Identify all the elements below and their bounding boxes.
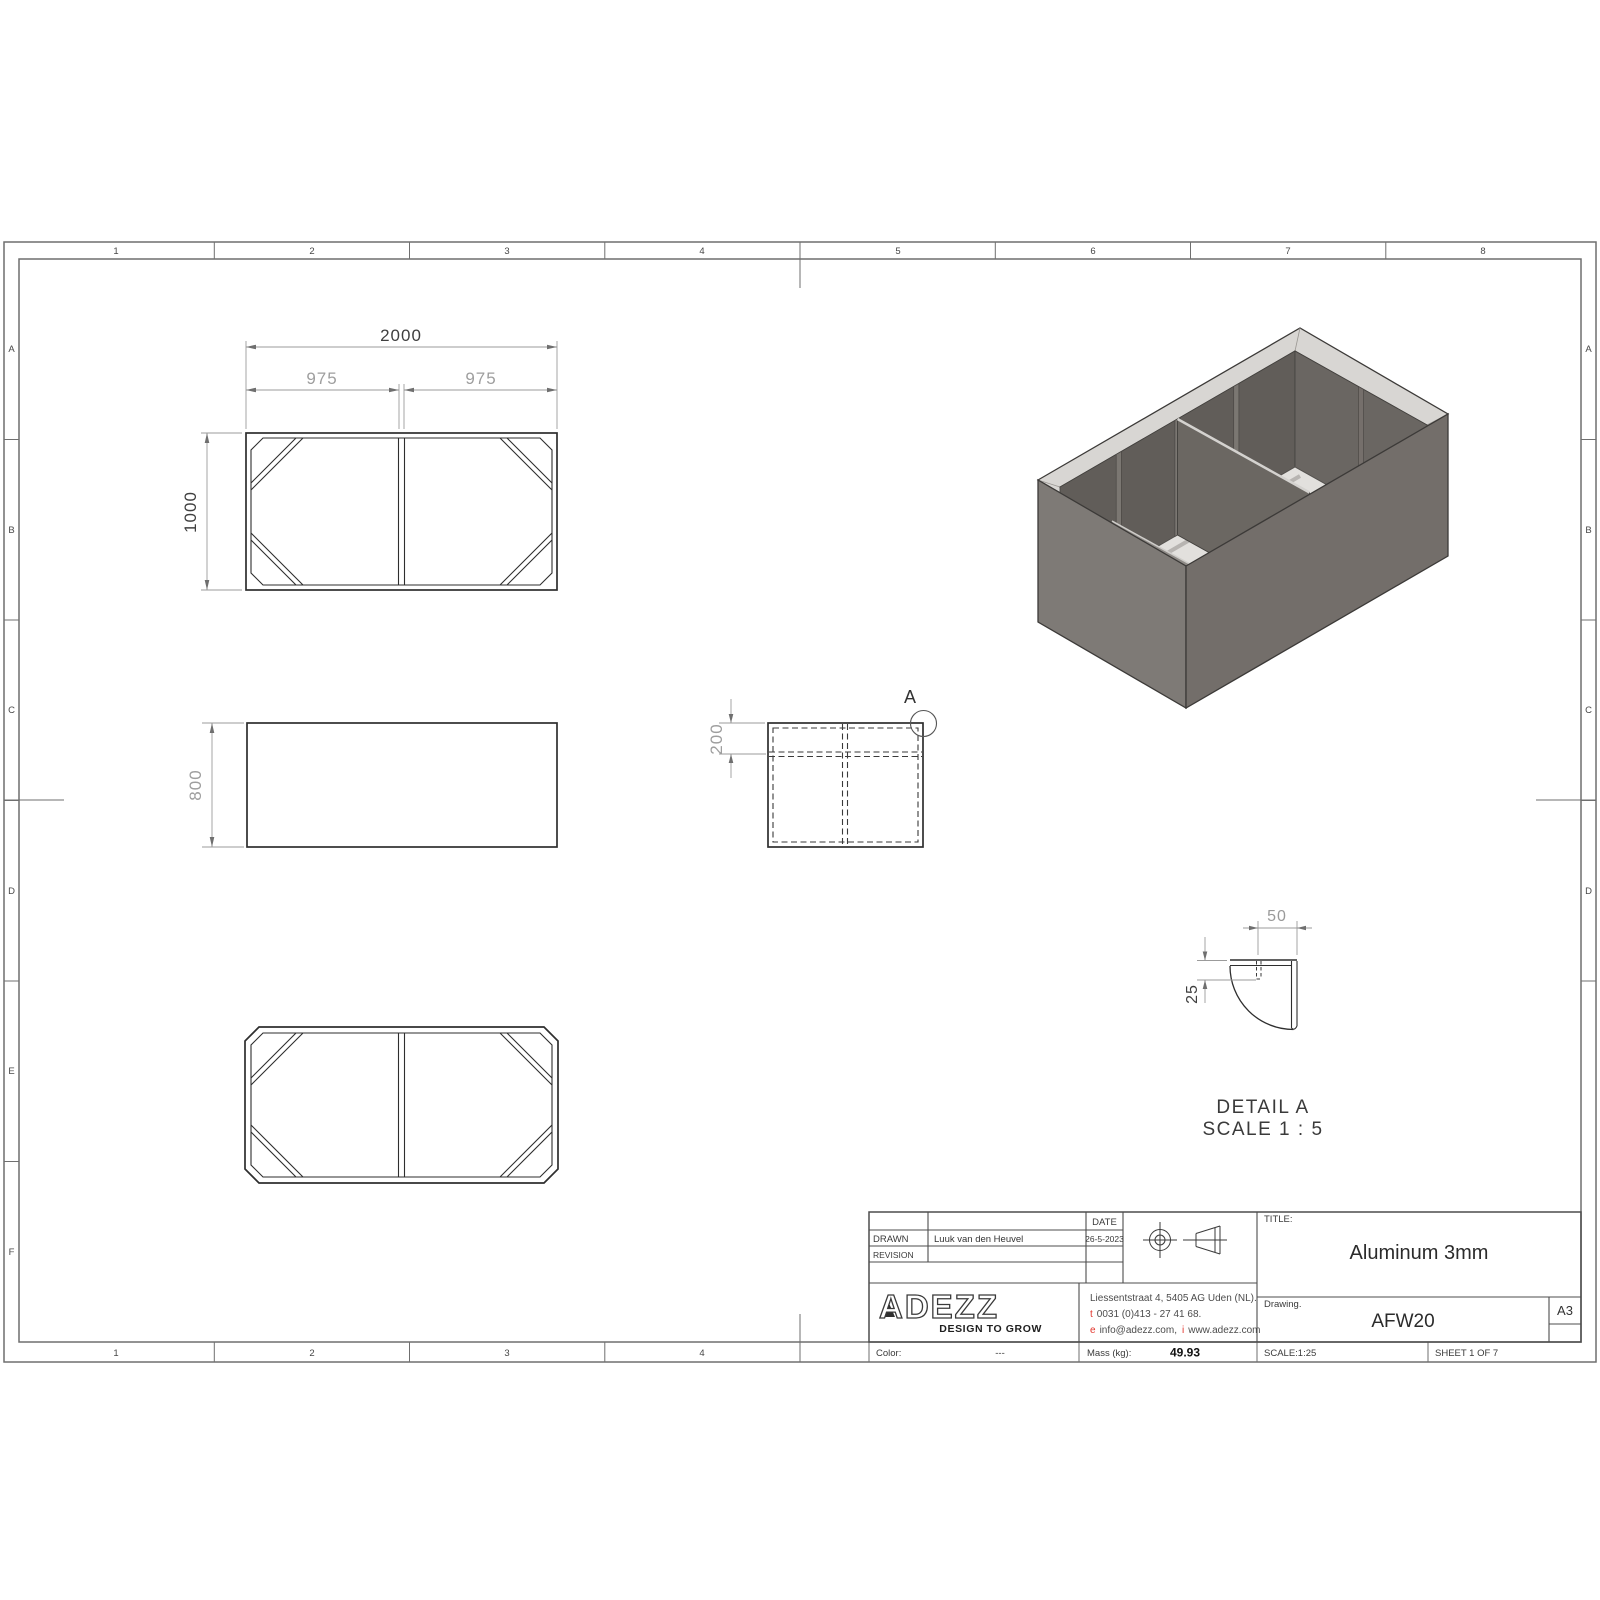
company-logo: ADEZZ [879,1288,999,1325]
cad-sheet-canvas: 1 2 3 4 5 6 7 8 1 2 3 4 A B C D E F A B … [0,0,1600,1600]
company-tagline: DESIGN TO GROW [939,1323,1042,1335]
front-view-outline [247,723,557,847]
dim-975-left: 975 [306,369,337,388]
bottom-corner-brace-bl [251,1125,303,1177]
corner-brace-tl [251,438,303,490]
detail-dim50-lines [1243,921,1312,955]
date-value: 26-5-2023 [1085,1234,1124,1244]
drawing-label: Drawing. [1264,1299,1302,1310]
top-view-outline [246,433,557,590]
top-view-center-divider [399,438,405,585]
web-value: www.adezz.com [1187,1325,1260,1336]
dim-1000: 1000 [181,491,200,533]
phone-prefix: t [1090,1309,1093,1320]
bottom-zone-dividers [214,1342,1428,1362]
title-label: TITLE: [1264,1214,1293,1225]
date-label: DATE [1092,1217,1117,1228]
title-value: Aluminum 3mm [1350,1242,1489,1264]
front-view-extension-lines [202,723,244,847]
side-view-outline [768,723,923,847]
detail-callout-label: A [904,687,916,707]
bottom-view-outline [245,1027,558,1183]
dim-975-right: 975 [465,369,496,388]
detail-title: DETAIL A [1216,1097,1309,1118]
corner-brace-bl [251,533,303,585]
zone-col-label: 1 [113,246,118,257]
company-web: einfo@adezz.com,iwww.adezz.com [1090,1325,1260,1336]
zone-col-label-bottom: 3 [504,1348,509,1359]
zone-row-label: D [8,886,15,897]
drawn-label: DRAWN [873,1234,909,1245]
zone-col-label: 5 [895,246,900,257]
detail-a-view: 50 25 DETAIL A SCALE 1 : 5 [1184,908,1324,1140]
zone-row-label-right: A [1585,344,1592,355]
sheet-value: SHEET 1 OF 7 [1435,1348,1498,1359]
phone-value: 0031 (0)413 - 27 41 68. [1097,1309,1202,1320]
email-prefix: e [1090,1325,1096,1336]
bottom-view-inner-wall [251,1033,552,1177]
top-view-inner-wall [251,438,552,585]
detail-hidden-fold [1257,961,1262,979]
zone-col-label-bottom: 2 [309,1348,314,1359]
zone-row-label-right: D [1585,886,1592,897]
scale-value: SCALE:1:25 [1264,1348,1316,1359]
side-view-extension-lines [719,723,766,754]
side-view-hidden-divider [843,724,848,846]
bottom-view-center-divider [399,1033,405,1177]
zone-col-label-bottom: 4 [699,1348,704,1359]
paper-size: A3 [1557,1303,1573,1318]
bottom-view [245,1027,558,1183]
zone-row-label: B [8,525,14,536]
top-view-extension-lines [201,341,557,590]
dim-800: 800 [186,769,205,800]
company-phone: t0031 (0)413 - 27 41 68. [1090,1309,1201,1320]
color-label: Color: [876,1348,901,1359]
zone-col-label: 4 [699,246,704,257]
zone-col-label: 7 [1285,246,1290,257]
drawn-by-value: Luuk van den Heuvel [934,1234,1023,1245]
zone-row-label: F [9,1247,15,1258]
zone-col-label-bottom: 1 [113,1348,118,1359]
zone-row-label: C [8,705,15,716]
revision-label: REVISION [873,1250,914,1260]
dim-200: 200 [707,723,726,754]
mass-label: Mass (kg): [1087,1348,1131,1359]
top-view-dimension-lines [207,347,557,590]
corner-brace-br [500,533,552,585]
zone-row-label-right: C [1585,705,1592,716]
title-block: DATE DRAWN Luuk van den Heuvel 26-5-2023… [869,1212,1581,1360]
bottom-corner-brace-tr [500,1033,552,1085]
drawing-number: AFW20 [1371,1311,1434,1332]
dim-2000: 2000 [380,326,422,345]
front-view: 800 [186,723,557,847]
zone-row-label: E [8,1066,14,1077]
detail-corner-gusset-arc [1230,966,1294,1030]
detail-scale: SCALE 1 : 5 [1202,1119,1323,1140]
zone-col-label: 8 [1480,246,1485,257]
company-address: Liessentstraat 4, 5405 AG Uden (NL). [1090,1293,1257,1304]
top-view: 2000 975 975 1000 [181,326,557,590]
color-value: --- [995,1348,1005,1359]
side-view-hidden-soil-line [769,752,922,757]
zone-col-label: 3 [504,246,509,257]
detail-wall-edge [1292,961,1298,1029]
zone-row-label: A [8,344,15,355]
zone-col-label: 6 [1090,246,1095,257]
side-view: 200 A [707,687,937,847]
side-view-hidden-inner [773,728,918,842]
dim-50: 50 [1267,908,1287,925]
web-prefix: i [1182,1325,1184,1336]
dim-25: 25 [1184,984,1201,1004]
drawing-sheet: { "sheet": { "cols": ["1","2","3","4","5… [0,0,1600,1600]
detail-dim25-lines [1197,937,1256,1003]
zone-row-label-right: B [1585,525,1591,536]
bottom-corner-brace-tl [251,1033,303,1085]
first-angle-projection-icon [1143,1222,1227,1258]
zone-col-label: 2 [309,246,314,257]
mass-value: 49.93 [1170,1346,1200,1360]
corner-brace-tr [500,438,552,490]
email-value: info@adezz.com, [1100,1325,1177,1336]
bottom-corner-brace-br [500,1125,552,1177]
isometric-view [1038,328,1448,708]
